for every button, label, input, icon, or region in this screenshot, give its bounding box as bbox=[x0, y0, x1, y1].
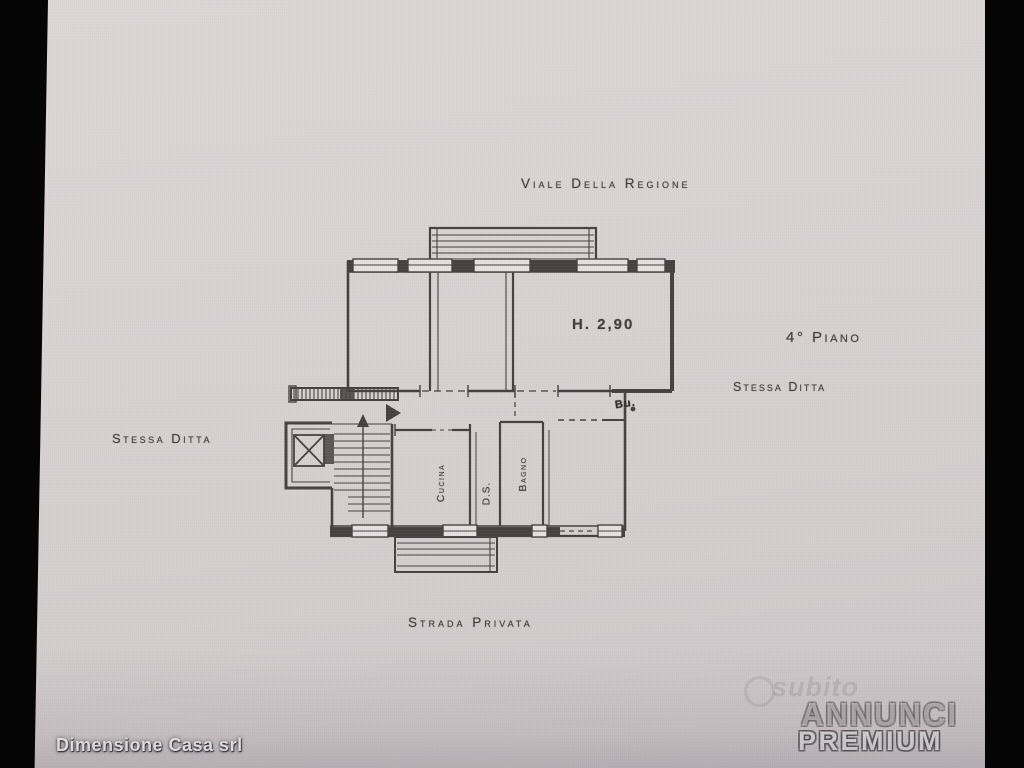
room-label-cucina: Cucina bbox=[435, 433, 447, 533]
ceiling-height-note: H. 2,90 bbox=[572, 316, 634, 333]
company-note-left: Stessa Ditta bbox=[112, 431, 212, 446]
floor-label: 4° Piano bbox=[786, 329, 861, 346]
agency-name: Dimensione Casa srl bbox=[56, 735, 243, 756]
room-label-ds: D.S. bbox=[482, 444, 493, 544]
top-wall-windows bbox=[347, 259, 675, 272]
stairwell bbox=[286, 414, 392, 537]
entrance-arrow-icon bbox=[386, 404, 401, 422]
room-label-bagno: Bagno bbox=[517, 424, 529, 524]
bottom-wall-windows bbox=[330, 525, 625, 537]
street-label-bottom: Strada Privata bbox=[408, 615, 533, 630]
company-note-right: Stessa Ditta bbox=[733, 380, 826, 394]
listing-photo-floor-plan: Viale Della Regione H. 2,90 4° Piano Ste… bbox=[0, 0, 1024, 768]
stair-direction-arrow-icon bbox=[357, 414, 369, 427]
street-label-top: Viale Della Regione bbox=[521, 176, 691, 191]
floor-plan-drawing bbox=[0, 0, 1024, 768]
interior-walls-upper bbox=[430, 272, 513, 391]
subito-ring-watermark-icon bbox=[744, 676, 775, 707]
stair-treads bbox=[334, 434, 390, 490]
interior-walls-lower bbox=[395, 420, 602, 526]
left-balcony bbox=[289, 386, 398, 402]
premium-watermark: PREMIUM bbox=[798, 728, 943, 755]
letterbox-bar-right bbox=[985, 0, 1024, 768]
